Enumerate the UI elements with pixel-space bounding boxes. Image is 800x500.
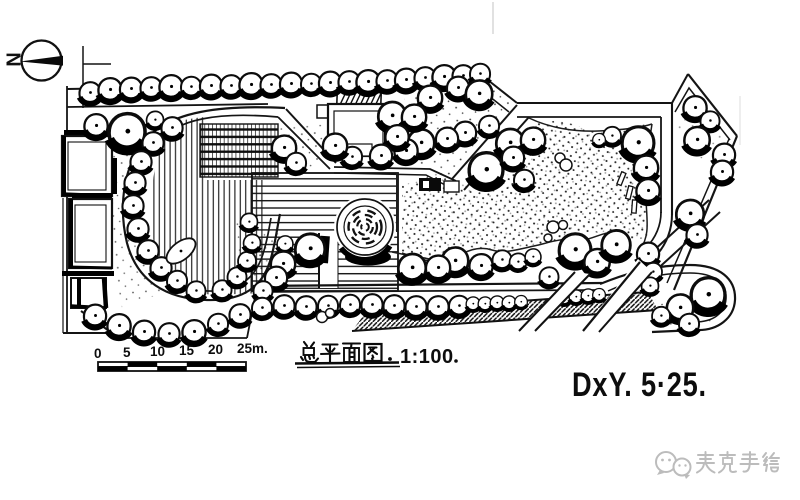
svg-text:20: 20: [208, 342, 223, 357]
svg-text:25m.: 25m.: [237, 341, 268, 356]
svg-text:N: N: [2, 52, 24, 66]
svg-text:5: 5: [123, 345, 131, 360]
svg-text:15: 15: [179, 343, 195, 358]
svg-text:10: 10: [150, 344, 165, 359]
svg-text:0: 0: [94, 346, 102, 361]
svg-text:1:100: 1:100: [400, 346, 454, 368]
svg-text:DxY. 5·25.: DxY. 5·25.: [572, 365, 707, 404]
